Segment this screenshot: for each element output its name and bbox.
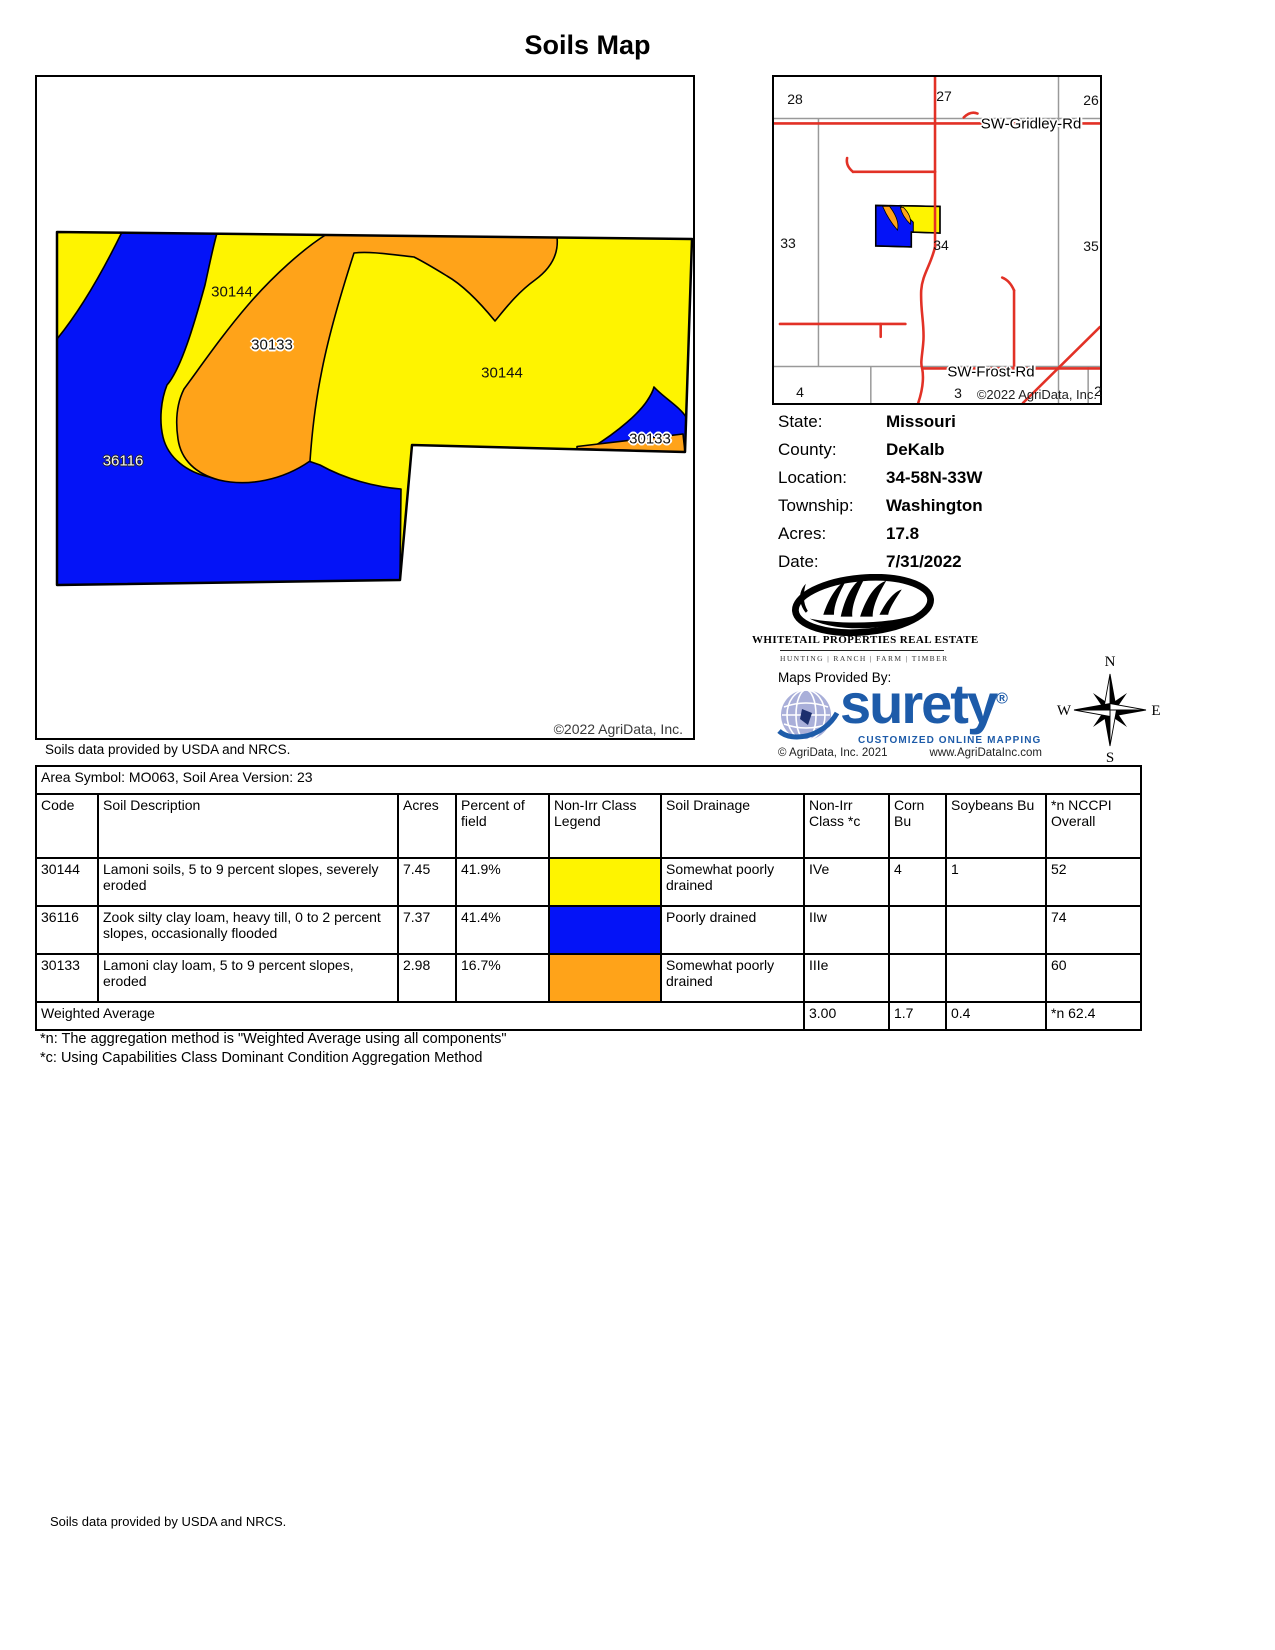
info-row-acres: Acres:17.8 [778, 524, 983, 552]
cell-nccpi: 52 [1046, 858, 1141, 906]
whitetail-logo-tagline: HUNTING | RANCH | FARM | TIMBER [780, 650, 944, 663]
locator-copyright: ©2022 AgriData, Inc. [977, 387, 1097, 402]
cell-soybeans [946, 906, 1046, 954]
info-row-state: State:Missouri [778, 412, 983, 440]
info-value: 7/31/2022 [886, 552, 962, 571]
cell-corn [889, 906, 946, 954]
table-row: 36116 Zook silty clay loam, heavy till, … [36, 906, 1141, 954]
map-copyright: ©2022 AgriData, Inc. [377, 721, 683, 737]
cell-code: 30144 [36, 858, 98, 906]
footnotes: *n: The aggregation method is "Weighted … [40, 1030, 507, 1068]
main-soils-map: 30144 30133 30144 36116 30133 ©2022 Agri… [35, 75, 695, 740]
soils-map-report-page: Soils Map 30144 30 [0, 0, 1275, 1650]
cell-description: Lamoni clay loam, 5 to 9 percent slopes,… [98, 954, 398, 1002]
col-header-acres: Acres [398, 794, 456, 858]
compass-west-label: W [1057, 703, 1072, 719]
info-label: State: [778, 412, 886, 432]
soils-data-note: Soils data provided by USDA and NRCS. [45, 742, 290, 757]
cell-soybeans [946, 954, 1046, 1002]
legend-swatch [549, 858, 661, 906]
area-symbol: Area Symbol: MO063, Soil Area Version: 2… [36, 766, 1141, 794]
cell-soybeans: 1 [946, 858, 1046, 906]
agridata-credit-line: © AgriData, Inc. 2021 www.AgriDataInc.co… [778, 747, 1042, 759]
compass-north-label: N [1105, 654, 1116, 670]
wa-nccpi: *n 62.4 [1046, 1002, 1141, 1030]
compass-rose-icon: N E S W [1056, 652, 1164, 764]
info-value: Missouri [886, 412, 956, 431]
info-value: 34-58N-33W [886, 468, 982, 487]
wa-nonirr-class: 3.00 [804, 1002, 889, 1030]
cell-acres: 7.37 [398, 906, 456, 954]
cell-corn: 4 [889, 858, 946, 906]
cell-nccpi: 60 [1046, 954, 1141, 1002]
col-header-percent: Percent of field [456, 794, 549, 858]
info-value: 17.8 [886, 524, 919, 543]
info-row-location: Location:34-58N-33W [778, 468, 983, 496]
weighted-average-row: Weighted Average 3.00 1.7 0.4 *n 62.4 [36, 1002, 1141, 1030]
wa-corn: 1.7 [889, 1002, 946, 1030]
cell-acres: 7.45 [398, 858, 456, 906]
locator-map: 28 27 26 33 34 35 4 3 2 SW-Gridley-Rd SW… [772, 75, 1102, 405]
col-header-code: Code [36, 794, 98, 858]
area-symbol-row: Area Symbol: MO063, Soil Area Version: 2… [36, 766, 1141, 794]
cell-description: Zook silty clay loam, heavy till, 0 to 2… [98, 906, 398, 954]
soil-code-label: 30133 [629, 431, 671, 448]
section-number: 4 [796, 384, 804, 400]
soil-polygons-map [37, 77, 693, 738]
cell-nonirr-class: IIw [804, 906, 889, 954]
info-row-township: Township:Washington [778, 496, 983, 524]
cell-drainage: Poorly drained [661, 906, 804, 954]
col-header-legend: Non-Irr Class Legend [549, 794, 661, 858]
table-row: 30133 Lamoni clay loam, 5 to 9 percent s… [36, 954, 1141, 1002]
col-header-nccpi: *n NCCPI Overall [1046, 794, 1141, 858]
info-label: Township: [778, 496, 886, 516]
road-label-frost: SW-Frost-Rd [947, 364, 1034, 381]
surety-tagline: CUSTOMIZED ONLINE MAPPING [858, 735, 1041, 746]
soil-code-label: 36116 [103, 453, 144, 470]
soil-code-label: 30133 [251, 337, 293, 354]
info-label: Acres: [778, 524, 886, 544]
agridata-url: www.AgriDataInc.com [930, 747, 1042, 759]
cell-description: Lamoni soils, 5 to 9 percent slopes, sev… [98, 858, 398, 906]
cell-drainage: Somewhat poorly drained [661, 954, 804, 1002]
info-label: County: [778, 440, 886, 460]
col-header-drainage: Soil Drainage [661, 794, 804, 858]
info-row-county: County:DeKalb [778, 440, 983, 468]
cell-nccpi: 74 [1046, 906, 1141, 954]
cell-code: 30133 [36, 954, 98, 1002]
section-number: 28 [787, 91, 803, 107]
legend-swatch [549, 906, 661, 954]
section-number: 33 [780, 235, 796, 251]
parcel-info-panel: State:Missouri County:DeKalb Location:34… [778, 412, 983, 580]
cell-code: 36116 [36, 906, 98, 954]
table-header-row: Code Soil Description Acres Percent of f… [36, 794, 1141, 858]
soils-table: Area Symbol: MO063, Soil Area Version: 2… [35, 765, 1142, 1031]
whitetail-antler-logo-icon [788, 574, 938, 636]
road-label-gridley: SW-Gridley-Rd [981, 116, 1082, 133]
col-header-nonirr-class: Non-Irr Class *c [804, 794, 889, 858]
cell-drainage: Somewhat poorly drained [661, 858, 804, 906]
compass-east-label: E [1151, 703, 1160, 719]
footnote-c: *c: Using Capabilities Class Dominant Co… [40, 1049, 507, 1068]
footnote-n: *n: The aggregation method is "Weighted … [40, 1030, 507, 1049]
cell-acres: 2.98 [398, 954, 456, 1002]
registered-mark: ® [996, 690, 1008, 707]
wa-soybeans: 0.4 [946, 1002, 1046, 1030]
surety-text: surety [840, 672, 996, 735]
soils-data-note-bottom: Soils data provided by USDA and NRCS. [50, 1514, 286, 1529]
cell-percent: 41.9% [456, 858, 549, 906]
col-header-description: Soil Description [98, 794, 398, 858]
info-value: DeKalb [886, 440, 945, 459]
weighted-average-label: Weighted Average [36, 1002, 804, 1030]
locator-field-inset [876, 205, 940, 246]
surety-wordmark: surety® [840, 676, 1008, 732]
soil-code-label: 30144 [481, 365, 523, 382]
agridata-copyright: © AgriData, Inc. 2021 [778, 747, 887, 759]
whitetail-logo-name: WHITETAIL PROPERTIES REAL ESTATE [752, 634, 972, 646]
cell-nonirr-class: IIIe [804, 954, 889, 1002]
info-value: Washington [886, 496, 983, 515]
section-number: 34 [933, 237, 949, 253]
cell-corn [889, 954, 946, 1002]
legend-swatch [549, 954, 661, 1002]
compass-south-label: S [1106, 750, 1114, 764]
col-header-corn: Corn Bu [889, 794, 946, 858]
surety-globe-icon [776, 687, 840, 749]
section-number: 35 [1083, 238, 1099, 254]
cell-nonirr-class: IVe [804, 858, 889, 906]
section-number: 27 [936, 88, 952, 104]
section-number: 3 [954, 385, 962, 401]
table-row: 30144 Lamoni soils, 5 to 9 percent slope… [36, 858, 1141, 906]
info-label: Location: [778, 468, 886, 488]
cell-percent: 41.4% [456, 906, 549, 954]
col-header-soybeans: Soybeans Bu [946, 794, 1046, 858]
info-label: Date: [778, 552, 886, 572]
section-number: 26 [1083, 92, 1099, 108]
page-title: Soils Map [35, 30, 1140, 61]
soil-code-label: 30144 [211, 284, 253, 301]
cell-percent: 16.7% [456, 954, 549, 1002]
